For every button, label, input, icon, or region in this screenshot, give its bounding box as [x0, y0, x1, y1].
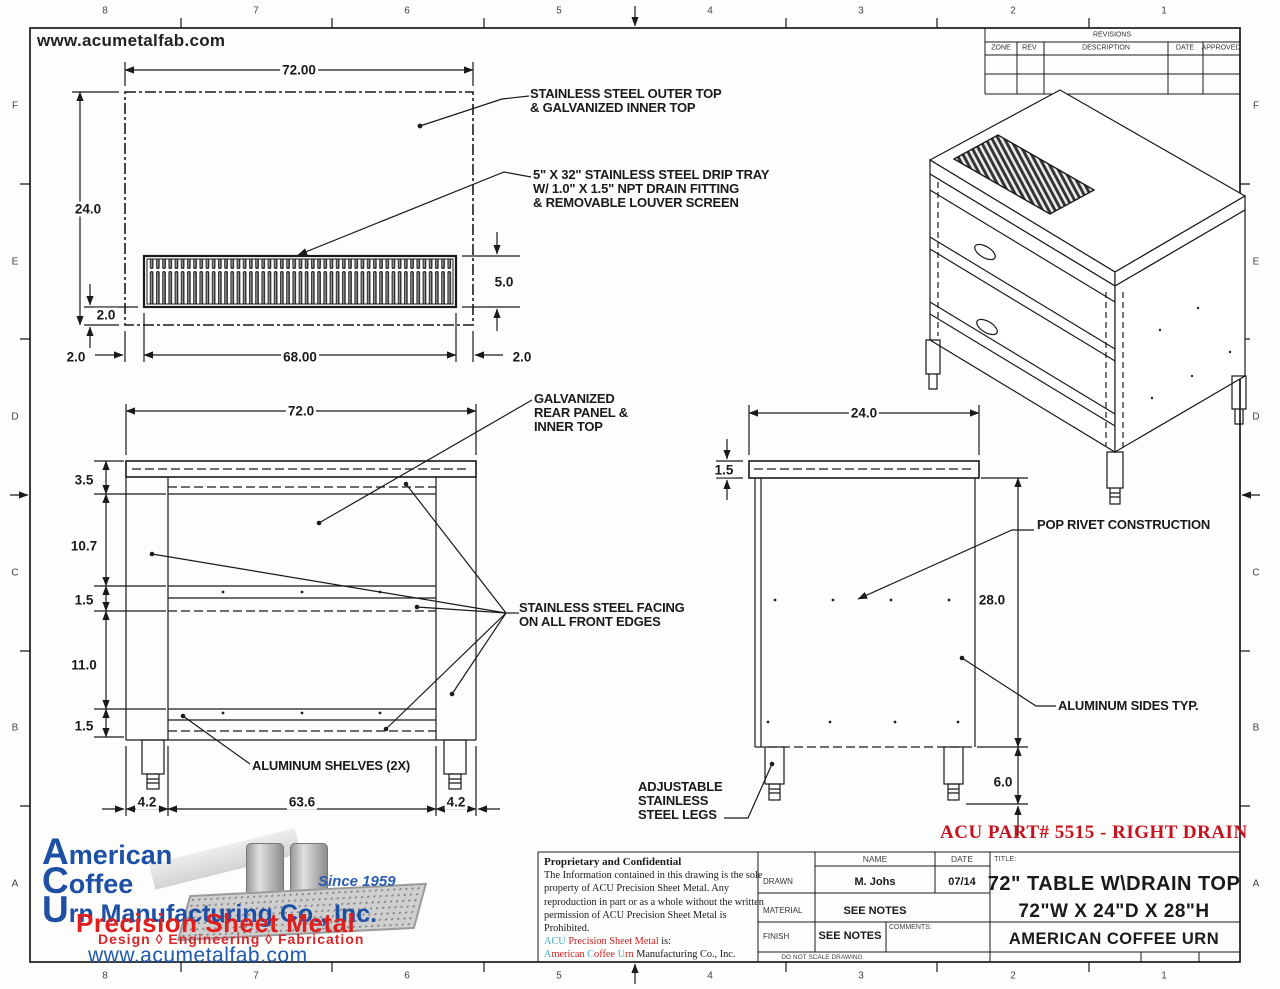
note-line: W/ 1.0" X 1.5" NPT DRAIN FITTING: [533, 182, 769, 196]
tb-title-line2: 72"W X 24"D X 28"H: [1018, 901, 1209, 923]
zone-row-left: F: [12, 101, 18, 112]
note-line: STEEL LEGS: [638, 808, 722, 822]
zone-col-bottom: 6: [404, 971, 410, 982]
brand-suffix: is:: [659, 936, 671, 947]
tb-finish-value: SEE NOTES: [819, 930, 882, 942]
dim-side-depth: 24.0: [849, 406, 879, 421]
zone-row-right: C: [1252, 568, 1259, 579]
proprietary-block: Proprietary and Confidential The Informa…: [544, 856, 754, 962]
note-outer-top: STAINLESS STEEL OUTER TOP & GALVANIZED I…: [530, 87, 721, 115]
note-pop-rivet: POP RIVET CONSTRUCTION: [1037, 518, 1210, 532]
top-view: [72, 62, 531, 362]
dim-side-leg: 6.0: [992, 775, 1015, 790]
zone-row-right: D: [1252, 412, 1259, 423]
zone-col-top: 8: [102, 6, 108, 17]
logo-url: www.acumetalfab.com: [88, 944, 308, 968]
zone-row-left: C: [11, 568, 18, 579]
front-view: [94, 400, 532, 816]
zone-col-bottom: 5: [556, 971, 562, 982]
note-line: STAINLESS STEEL FACING: [519, 601, 685, 615]
dim-right-margin: 2.0: [511, 350, 534, 365]
note-line: ADJUSTABLE: [638, 780, 722, 794]
revisions-col-date: DATE: [1176, 45, 1194, 52]
note-line: INNER TOP: [534, 420, 628, 434]
dim-front-shelf1: 1.5: [73, 593, 96, 608]
brand-acu: ACU: [544, 936, 566, 947]
note-line: STAINLESS STEEL OUTER TOP: [530, 87, 721, 101]
dim-top-width: 72.00: [280, 63, 318, 78]
dim-top-depth: 24.0: [73, 202, 103, 217]
zone-col-top: 1: [1161, 6, 1167, 17]
revisions-col-rev: REV.: [1022, 45, 1038, 52]
note-adjustable-legs: ADJUSTABLE STAINLESS STEEL LEGS: [638, 780, 722, 822]
tb-material-label: MATERIAL: [763, 906, 802, 915]
zone-row-left: E: [12, 257, 19, 268]
note-aluminum-shelves: ALUMINUM SHELVES (2X): [252, 759, 410, 773]
zone-row-left: A: [12, 879, 19, 890]
note-aluminum-sides: ALUMINUM SIDES TYP.: [1058, 699, 1198, 713]
tb-material-value: SEE NOTES: [844, 905, 907, 917]
note-line: GALVANIZED: [534, 392, 628, 406]
dim-front-lower: 11.0: [69, 658, 99, 673]
tb-name-header: NAME: [863, 854, 888, 864]
tb-do-not-scale: DO NOT SCALE DRAWING: [781, 954, 862, 961]
tb-title-line1: 72" TABLE W\DRAIN TOP: [988, 873, 1241, 896]
proprietary-line: The Information contained in this drawin…: [544, 869, 754, 882]
dim-front-right-leg: 4.2: [445, 795, 468, 810]
proprietary-line: reproduction in part or as a whole witho…: [544, 896, 754, 909]
zone-col-bottom: 3: [858, 971, 864, 982]
zone-row-left: D: [11, 412, 18, 423]
revisions-col-approved: APPROVED: [1202, 45, 1241, 52]
note-drip-tray: 5" X 32" STAINLESS STEEL DRIP TRAY W/ 1.…: [533, 168, 769, 210]
dim-tray-height: 5.0: [493, 275, 516, 290]
company-part: rn: [625, 949, 636, 960]
proprietary-line: property of ACU Precision Sheet Metal. A…: [544, 882, 754, 895]
company-part: merican: [551, 949, 587, 960]
dim-left-margin: 2.0: [65, 350, 88, 365]
proprietary-brand-line: ACU Precision Sheet Metal is:: [544, 935, 754, 948]
zone-col-bottom: 7: [253, 971, 259, 982]
zone-col-top: 7: [253, 6, 259, 17]
zone-row-right: A: [1253, 879, 1260, 890]
zone-col-top: 5: [556, 6, 562, 17]
zone-col-bottom: 2: [1010, 971, 1016, 982]
dim-front-left-leg: 4.2: [136, 795, 159, 810]
revisions-col-description: DESCRIPTION: [1082, 45, 1130, 52]
side-view: [716, 405, 1056, 836]
dim-front-shelf2: 1.5: [73, 719, 96, 734]
tb-title-line3: AMERICAN COFFEE URN: [1009, 930, 1219, 949]
dim-side-top-band: 1.5: [713, 463, 736, 478]
zone-col-top: 2: [1010, 6, 1016, 17]
proprietary-line: permission of ACU Precision Sheet Metal …: [544, 909, 754, 922]
company-part: offee: [594, 949, 618, 960]
proprietary-company-line: American Coffee Urn Manufacturing Co., I…: [544, 948, 754, 961]
revisions-col-zone: ZONE: [991, 45, 1010, 52]
tb-title-label: TITLE:: [994, 854, 1017, 863]
revisions-title: REVISIONS: [1093, 32, 1131, 39]
zone-row-right: B: [1253, 723, 1260, 734]
tb-drawn-date: 07/14: [948, 876, 976, 888]
proprietary-heading: Proprietary and Confidential: [544, 856, 754, 869]
zone-col-bottom: 8: [102, 971, 108, 982]
zone-row-right: E: [1253, 257, 1260, 268]
note-line: & GALVANIZED INNER TOP: [530, 101, 721, 115]
note-rear-panel: GALVANIZED REAR PANEL & INNER TOP: [534, 392, 628, 434]
zone-row-left: B: [12, 723, 19, 734]
zone-col-top: 3: [858, 6, 864, 17]
tb-drawn-name: M. Johs: [855, 876, 896, 888]
note-line: ON ALL FRONT EDGES: [519, 615, 685, 629]
tb-date-header: DATE: [951, 854, 973, 864]
zone-col-bottom: 4: [707, 971, 713, 982]
tb-finish-label: FINISH: [763, 932, 789, 941]
isometric-view: [926, 90, 1246, 504]
dim-front-top-band: 3.5: [73, 473, 96, 488]
dim-front-span: 63.6: [287, 795, 317, 810]
company-initial: U: [618, 949, 625, 960]
dim-front-width: 72.0: [286, 404, 316, 419]
note-line: & REMOVABLE LOUVER SCREEN: [533, 196, 769, 210]
logo-since: Since 1959: [318, 873, 396, 890]
brand-psm: Precision Sheet Metal: [566, 936, 659, 947]
note-line: 5" X 32" STAINLESS STEEL DRIP TRAY: [533, 168, 769, 182]
zone-col-top: 4: [707, 6, 713, 17]
zone-col-top: 6: [404, 6, 410, 17]
note-ss-facing: STAINLESS STEEL FACING ON ALL FRONT EDGE…: [519, 601, 685, 629]
dim-tray-offset: 2.0: [95, 308, 118, 323]
company-part: Manufacturing Co., Inc.: [636, 949, 735, 960]
note-line: STAINLESS: [638, 794, 722, 808]
header-url: www.acumetalfab.com: [37, 31, 225, 51]
logo-initial: U: [42, 889, 69, 930]
part-number-note: ACU PART# 5515 - RIGHT DRAIN: [940, 822, 1248, 844]
note-line: REAR PANEL &: [534, 406, 628, 420]
proprietary-line: Prohibited.: [544, 922, 754, 935]
tb-drawn-label: DRAWN: [763, 877, 793, 886]
drawing-sheet: 8 7 6 5 4 3 2 1 8 7 6 5 4 3 2 1 F E D C …: [0, 0, 1280, 989]
dim-side-height: 28.0: [977, 593, 1007, 608]
tb-comments-label: COMMENTS:: [889, 924, 932, 931]
dim-front-upper: 10.7: [69, 539, 99, 554]
dim-tray-length: 68.00: [281, 350, 319, 365]
zone-row-right: F: [1253, 101, 1259, 112]
zone-col-bottom: 1: [1161, 971, 1167, 982]
